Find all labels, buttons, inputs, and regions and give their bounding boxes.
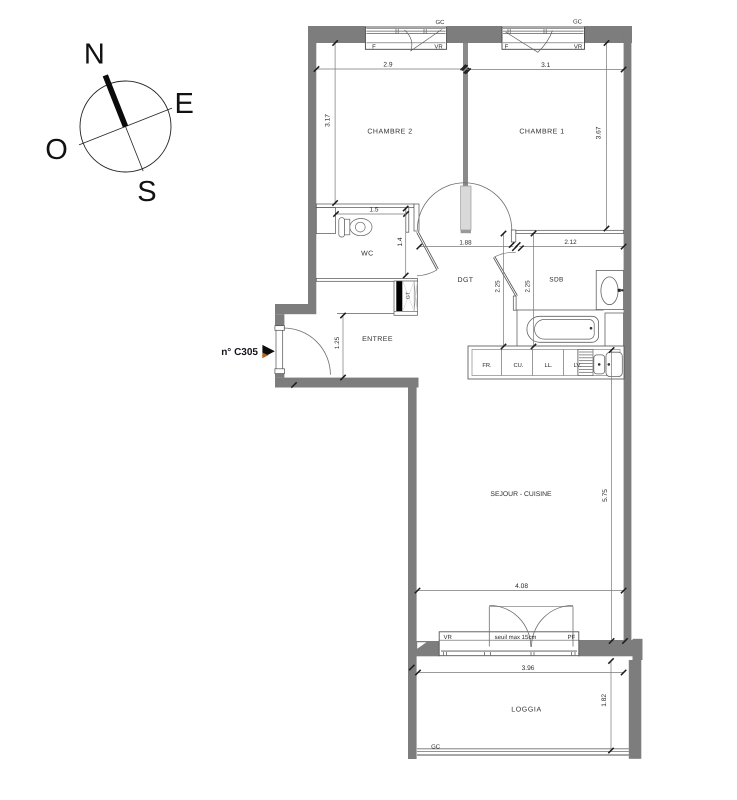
svg-text:O: O bbox=[45, 134, 68, 166]
svg-text:1.4: 1.4 bbox=[397, 237, 404, 246]
svg-text:PF: PF bbox=[568, 634, 576, 641]
svg-text:E: E bbox=[175, 88, 194, 120]
svg-text:4.08: 4.08 bbox=[515, 583, 528, 590]
svg-text:LL.: LL. bbox=[544, 363, 552, 369]
svg-text:3.1: 3.1 bbox=[541, 62, 550, 69]
svg-text:1.25: 1.25 bbox=[334, 336, 341, 349]
svg-text:3.67: 3.67 bbox=[596, 126, 603, 139]
svg-text:2.25: 2.25 bbox=[495, 280, 502, 293]
svg-text:WC: WC bbox=[361, 251, 373, 258]
svg-text:N: N bbox=[84, 39, 105, 71]
svg-text:VR: VR bbox=[434, 44, 443, 51]
svg-text:S: S bbox=[137, 176, 156, 208]
svg-text:LOGGIA: LOGGIA bbox=[511, 706, 541, 713]
svg-text:5.75: 5.75 bbox=[602, 489, 609, 502]
svg-text:SEJOUR - CUISINE: SEJOUR - CUISINE bbox=[490, 491, 552, 498]
svg-text:ENTREE: ENTREE bbox=[362, 336, 393, 343]
svg-text:LV.: LV. bbox=[574, 363, 582, 369]
svg-text:2.25: 2.25 bbox=[525, 280, 532, 293]
svg-text:F: F bbox=[505, 44, 509, 51]
svg-text:1.88: 1.88 bbox=[459, 239, 472, 246]
svg-text:DGT: DGT bbox=[458, 277, 474, 284]
svg-text:VR: VR bbox=[444, 634, 453, 641]
svg-text:n° C305: n° C305 bbox=[221, 347, 258, 358]
svg-text:3.96: 3.96 bbox=[522, 665, 535, 672]
svg-text:GT: GT bbox=[406, 291, 412, 299]
svg-text:F: F bbox=[372, 44, 376, 51]
svg-text:3.17: 3.17 bbox=[325, 114, 332, 127]
svg-text:2.9: 2.9 bbox=[383, 62, 392, 69]
svg-text:CU.: CU. bbox=[514, 362, 524, 369]
svg-text:1.5: 1.5 bbox=[369, 207, 378, 214]
svg-text:CHAMBRE 2: CHAMBRE 2 bbox=[367, 128, 412, 135]
svg-text:VR: VR bbox=[574, 44, 583, 51]
svg-text:SDB: SDB bbox=[549, 277, 564, 284]
svg-text:seuil max 15cm: seuil max 15cm bbox=[495, 634, 537, 641]
svg-text:2.12: 2.12 bbox=[564, 239, 577, 246]
svg-text:CHAMBRE 1: CHAMBRE 1 bbox=[519, 128, 564, 135]
svg-text:FR.: FR. bbox=[482, 363, 492, 369]
svg-text:GC: GC bbox=[573, 18, 583, 25]
svg-text:1.82: 1.82 bbox=[601, 694, 608, 707]
svg-text:GC: GC bbox=[436, 19, 446, 26]
svg-text:GC: GC bbox=[431, 743, 441, 750]
